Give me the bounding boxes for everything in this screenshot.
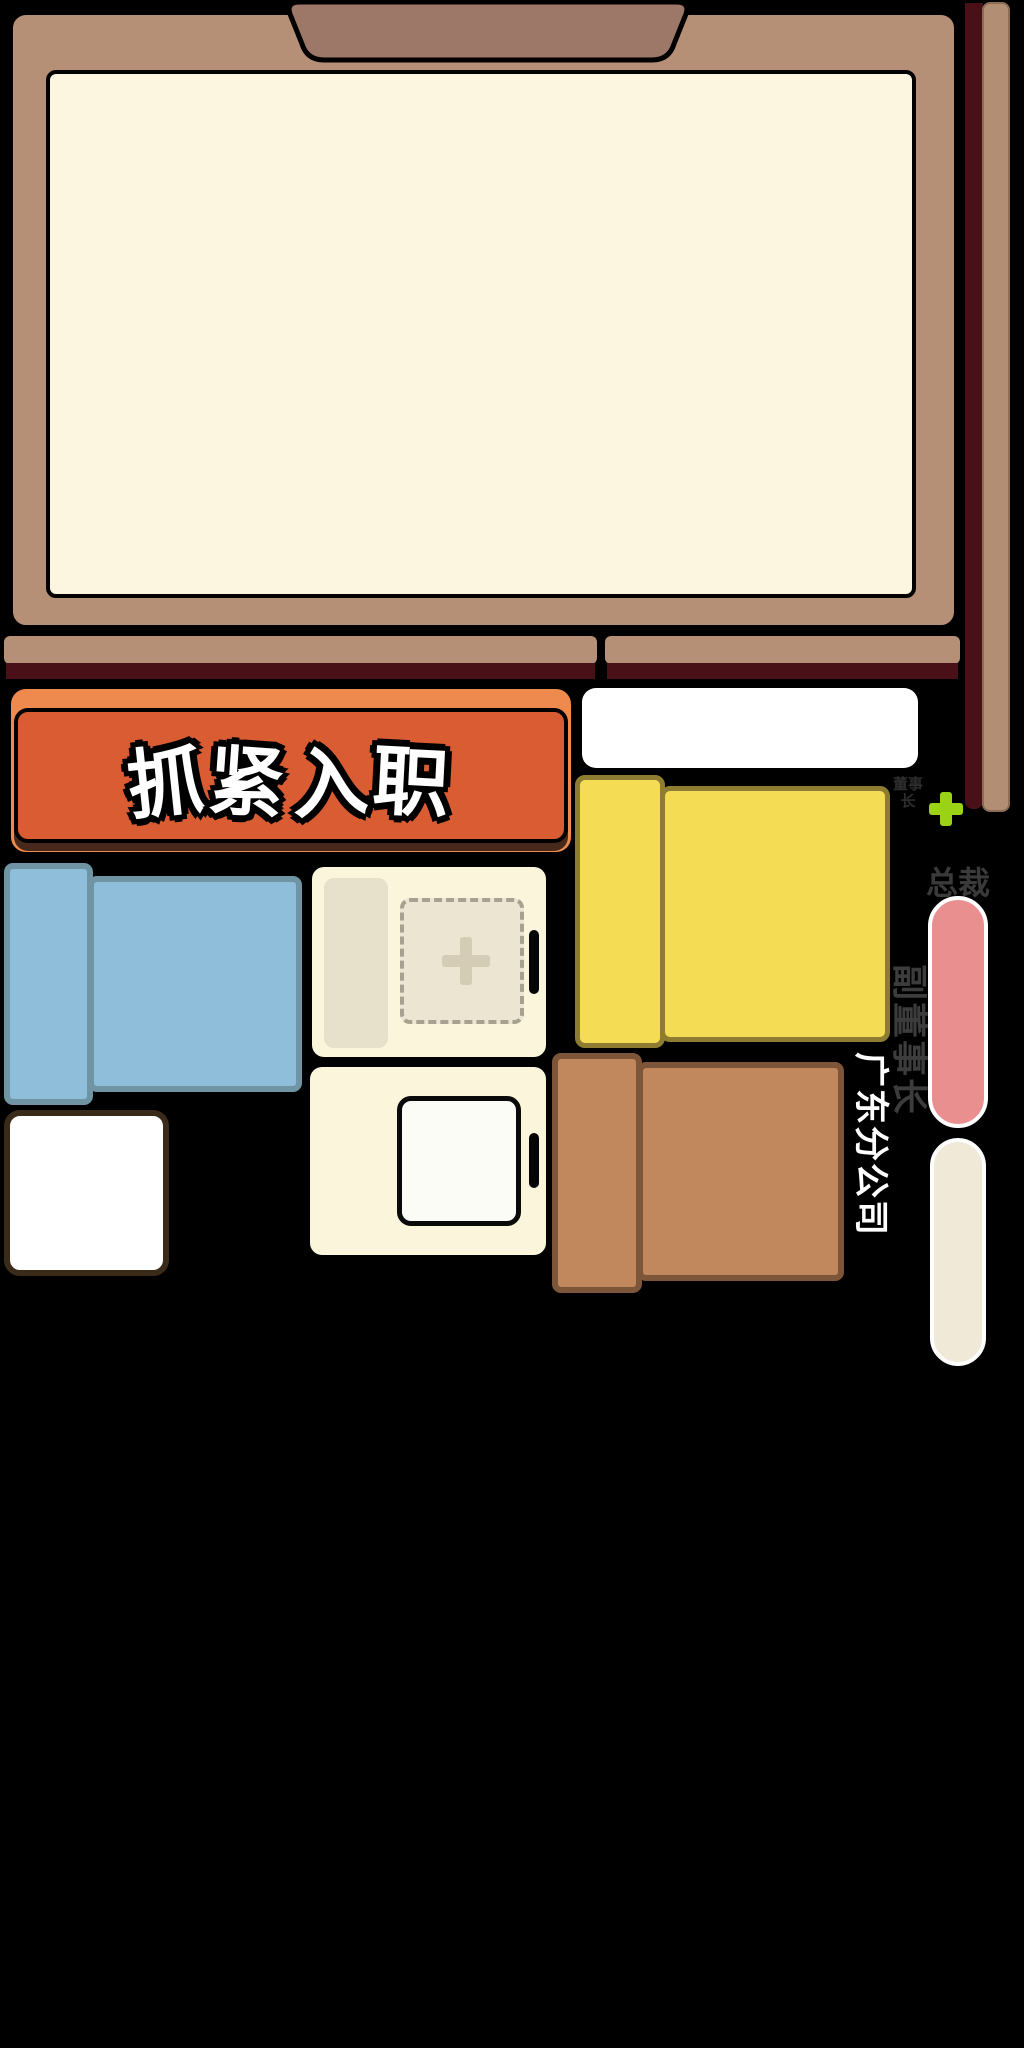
onboard-cta-label: 抓紧入职 xyxy=(127,721,455,831)
piece-brown-narrow[interactable] xyxy=(552,1053,642,1293)
ladder-label-chairman: 董事长 xyxy=(886,776,930,810)
tray-bottom-handle xyxy=(529,1133,539,1188)
ladder-node-cream[interactable] xyxy=(930,1138,986,1366)
onboard-cta-button-face[interactable]: 抓紧入职 xyxy=(14,708,568,843)
tray-top-handle xyxy=(529,930,539,994)
add-icon[interactable] xyxy=(929,792,963,826)
shelf-shadow-left xyxy=(6,663,595,679)
game-screen: 抓紧入职 董事长 总裁 副董事长 广东分公司 xyxy=(0,0,1024,2048)
board-drop-area[interactable] xyxy=(46,70,916,598)
piece-yellow-big[interactable] xyxy=(660,786,890,1042)
clipboard-clip xyxy=(284,0,692,68)
empty-slot-add[interactable] xyxy=(400,898,524,1024)
piece-blue-narrow[interactable] xyxy=(4,863,93,1105)
shelf-bar-right xyxy=(605,636,960,664)
ladder-label-branch: 广东分公司 xyxy=(848,1052,899,1237)
easel-leg xyxy=(982,2,1010,812)
onboard-cta-button[interactable]: 抓紧入职 xyxy=(8,686,574,855)
easel-leg-shadow xyxy=(965,3,983,809)
shelf-bar-left xyxy=(4,636,597,664)
dashed-plus-icon xyxy=(442,955,490,967)
plus-icon-bar xyxy=(929,803,963,815)
tray-slot-occupied xyxy=(324,878,388,1048)
piece-yellow-narrow[interactable] xyxy=(575,775,665,1048)
empty-card-slot[interactable] xyxy=(4,1110,169,1276)
reward-card[interactable] xyxy=(582,688,918,768)
piece-brown-big[interactable] xyxy=(637,1062,844,1281)
shelf-shadow-right xyxy=(607,663,958,679)
piece-blue-big[interactable] xyxy=(88,876,302,1092)
tray-white-tile[interactable] xyxy=(397,1096,521,1226)
